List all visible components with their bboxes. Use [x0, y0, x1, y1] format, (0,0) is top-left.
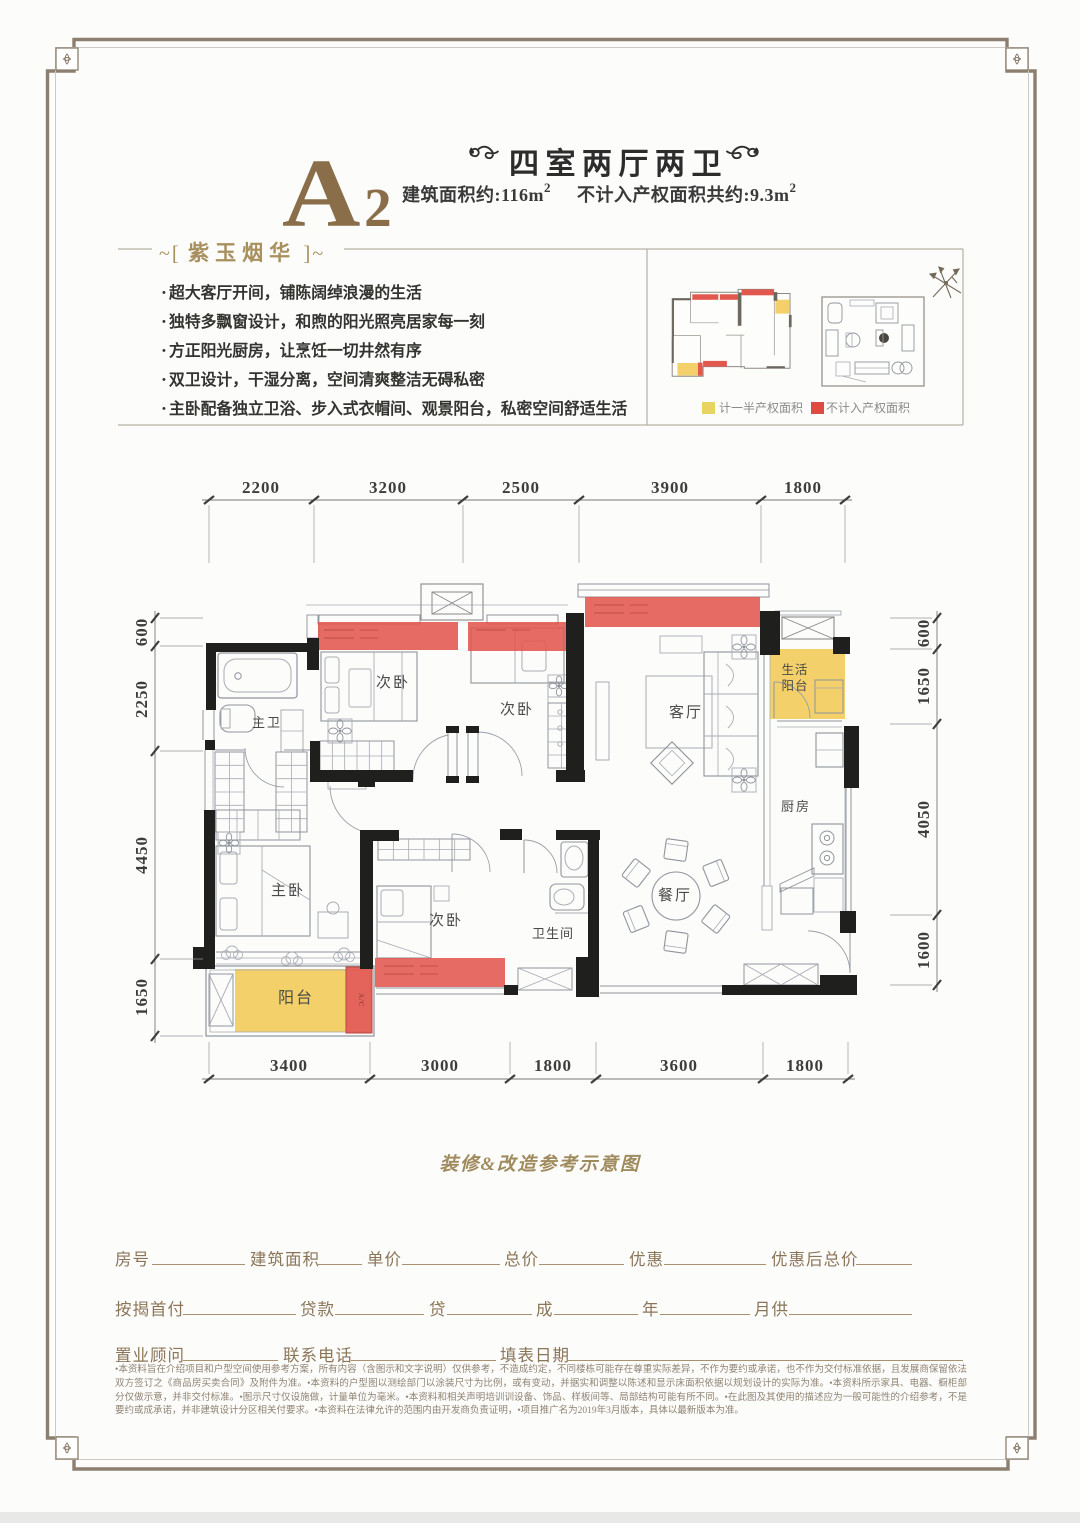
svg-text:1600: 1600 — [914, 931, 933, 969]
svg-text:3400: 3400 — [270, 1056, 308, 1075]
svg-text:4450: 4450 — [132, 836, 151, 874]
svg-text:1800: 1800 — [534, 1056, 572, 1075]
svg-text:600: 600 — [132, 618, 151, 647]
svg-text:A/C: A/C — [357, 993, 366, 1007]
svg-text:1800: 1800 — [786, 1056, 824, 1075]
svg-text:3600: 3600 — [660, 1056, 698, 1075]
svg-text:3000: 3000 — [421, 1056, 459, 1075]
svg-text:卫生间: 卫生间 — [532, 926, 574, 941]
svg-text:不计入产权面积: 不计入产权面积 — [826, 401, 910, 415]
svg-text:3900: 3900 — [651, 478, 689, 497]
svg-text:计一半产权面积: 计一半产权面积 — [719, 401, 803, 415]
svg-text:1800: 1800 — [784, 478, 822, 497]
svg-text:次卧: 次卧 — [376, 674, 410, 691]
svg-text:600: 600 — [914, 619, 933, 648]
svg-text:厨房: 厨房 — [781, 799, 811, 814]
svg-text:4050: 4050 — [914, 800, 933, 838]
svg-text:2200: 2200 — [242, 478, 280, 497]
svg-text:阳台: 阳台 — [278, 989, 314, 1007]
svg-text:客厅: 客厅 — [669, 704, 703, 721]
svg-text:生活: 生活 — [781, 663, 808, 677]
svg-text:主卫: 主卫 — [252, 715, 282, 730]
svg-text:次卧: 次卧 — [429, 912, 463, 929]
svg-text:1650: 1650 — [132, 978, 151, 1016]
svg-text:次卧: 次卧 — [500, 701, 534, 718]
svg-text:3200: 3200 — [369, 478, 407, 497]
svg-text:餐厅: 餐厅 — [658, 887, 692, 904]
svg-text:阳台: 阳台 — [781, 678, 808, 693]
svg-text:1650: 1650 — [914, 667, 933, 705]
svg-text:2250: 2250 — [132, 680, 151, 718]
svg-text:主卧: 主卧 — [271, 882, 305, 899]
svg-text:2500: 2500 — [502, 478, 540, 497]
